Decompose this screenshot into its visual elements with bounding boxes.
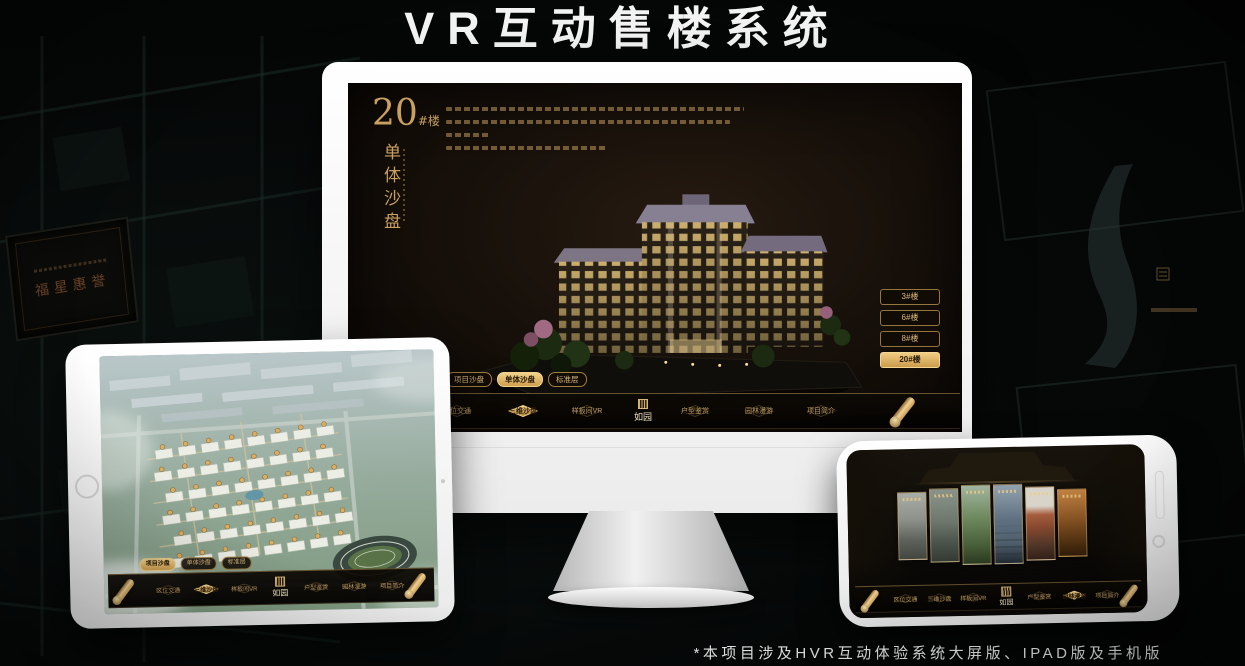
scroll-menu-icon[interactable] [1120,583,1139,606]
nav-item-garden-roam[interactable]: 园林漫游 [342,581,366,591]
nav-item-unit-plans[interactable]: 户型鉴赏 [1027,591,1051,601]
unit-title: 20#楼 [372,96,440,132]
nav-item-project-intro[interactable]: 项目简介 [380,581,404,591]
phone-speaker-slot [1155,471,1165,519]
subtab-single-sandbox[interactable]: 单体沙盘 [497,372,543,387]
description-line [446,133,490,137]
tablet-subtab-group: 项目沙盘 单体沙盘 标准层 [140,556,252,571]
phone-camera-icon [1152,535,1165,548]
seal-icon [275,576,285,586]
nav-item-3d-sandbox[interactable]: 三维沙盘 [194,584,218,594]
nav-item-3d-sandbox[interactable]: 三维沙盘 [927,593,951,603]
nav-item-garden-roam[interactable]: 园林漫游 [745,406,773,416]
gallery-card-garden[interactable] [961,484,992,565]
brand-logo[interactable]: 如园 [272,576,288,598]
subtab-standard-floor[interactable]: 标准层 [548,372,587,387]
poster-canvas: 福星惠誉 VR互动售楼系统 20#楼 单体沙盘 [0,0,1245,666]
subtab-standard-floor[interactable]: 标准层 [222,556,252,570]
tablet-frame: 项目沙盘 单体沙盘 标准层 区位交通 三维沙盘 样板间VR 如园 户型鉴赏 园林… [65,337,455,629]
description-line [446,107,744,111]
gallery-card-courtyard[interactable] [897,492,927,561]
gallery-card-autumn-landscape[interactable] [1025,486,1056,561]
scroll-menu-icon[interactable] [890,396,917,427]
floor-button-20[interactable]: 20#楼 [880,352,940,368]
plaque-brand-text: 福星惠誉 [34,269,111,301]
description-line [446,120,730,124]
tablet-camera-dot [441,479,445,483]
subtab-project-sandbox[interactable]: 项目沙盘 [140,558,176,572]
monitor-stand-base [548,587,754,608]
gallery-card-interior[interactable] [1057,488,1087,557]
background-award-plaque: 福星惠誉 [5,217,139,342]
tablet-home-button[interactable] [75,474,99,498]
brand-logo[interactable]: 如园 [999,586,1013,607]
floor-button-8[interactable]: 8#楼 [880,331,940,347]
description-line [446,146,608,150]
scroll-menu-icon[interactable] [405,572,428,598]
floor-button-6[interactable]: 6#楼 [880,310,940,326]
gallery-card-building[interactable] [993,484,1024,565]
subtab-project-sandbox[interactable]: 项目沙盘 [446,372,492,387]
nav-item-showroom-vr[interactable]: 样板间VR [231,584,258,594]
seal-icon [1001,586,1011,596]
nav-item-showroom-vr[interactable]: 样板间VR [572,406,603,416]
nav-item-unit-plans[interactable]: 户型鉴赏 [681,406,709,416]
tablet-bottom-navbar: 区位交通 三维沙盘 样板间VR 如园 户型鉴赏 园林漫游 项目简介 [108,567,435,608]
nav-item-showroom-vr[interactable]: 样板间VR [960,592,987,602]
unit-number-suffix: #楼 [418,114,440,128]
phone-frame: 区位交通 三维沙盘 样板间VR 如园 户型鉴赏 园林漫游 项目简介 [836,434,1180,627]
nav-item-unit-plans[interactable]: 户型鉴赏 [304,582,328,592]
gallery-card-lobby[interactable] [929,488,960,563]
nav-item-3d-sandbox[interactable]: 三维沙盘 [509,406,537,416]
nav-item-garden-roam[interactable]: 园林漫游 [1062,590,1086,600]
tablet-screen: 项目沙盘 单体沙盘 标准层 区位交通 三维沙盘 样板间VR 如园 户型鉴赏 园林… [99,349,438,614]
phone-screen: 区位交通 三维沙盘 样板间VR 如园 户型鉴赏 园林漫游 项目简介 [846,444,1147,618]
subtab-single-sandbox[interactable]: 单体沙盘 [181,557,217,571]
unit-subtitle: 单体沙盘 [378,143,403,235]
nav-item-location-traffic[interactable]: 区位交通 [893,594,917,604]
nav-item-project-intro[interactable]: 项目简介 [1095,590,1119,600]
scroll-menu-icon[interactable] [861,588,880,611]
panorama-gallery [897,477,1101,571]
page-title: VR互动售楼系统 [0,0,1245,58]
floor-button-3[interactable]: 3#楼 [880,289,940,305]
unit-number: 20 [372,93,418,134]
scroll-menu-icon[interactable] [113,578,136,604]
footnote-text: *本项目涉及HVR互动体验系统大屏版、IPAD版及手机版 [694,642,1163,663]
seal-icon [638,399,648,409]
nav-item-project-intro[interactable]: 项目简介 [807,406,835,416]
nav-item-location-traffic[interactable]: 区位交通 [156,585,180,595]
unit-subtitle-english-decoration [403,149,405,221]
monitor-stand-neck [551,511,751,591]
project-description-text-lines [446,107,748,159]
brand-logo[interactable]: 如园 [634,399,652,423]
sandbox-subtab-group: 项目沙盘 单体沙盘 标准层 [446,372,587,387]
floor-button-group: 3#楼 6#楼 8#楼 20#楼 [880,289,940,368]
